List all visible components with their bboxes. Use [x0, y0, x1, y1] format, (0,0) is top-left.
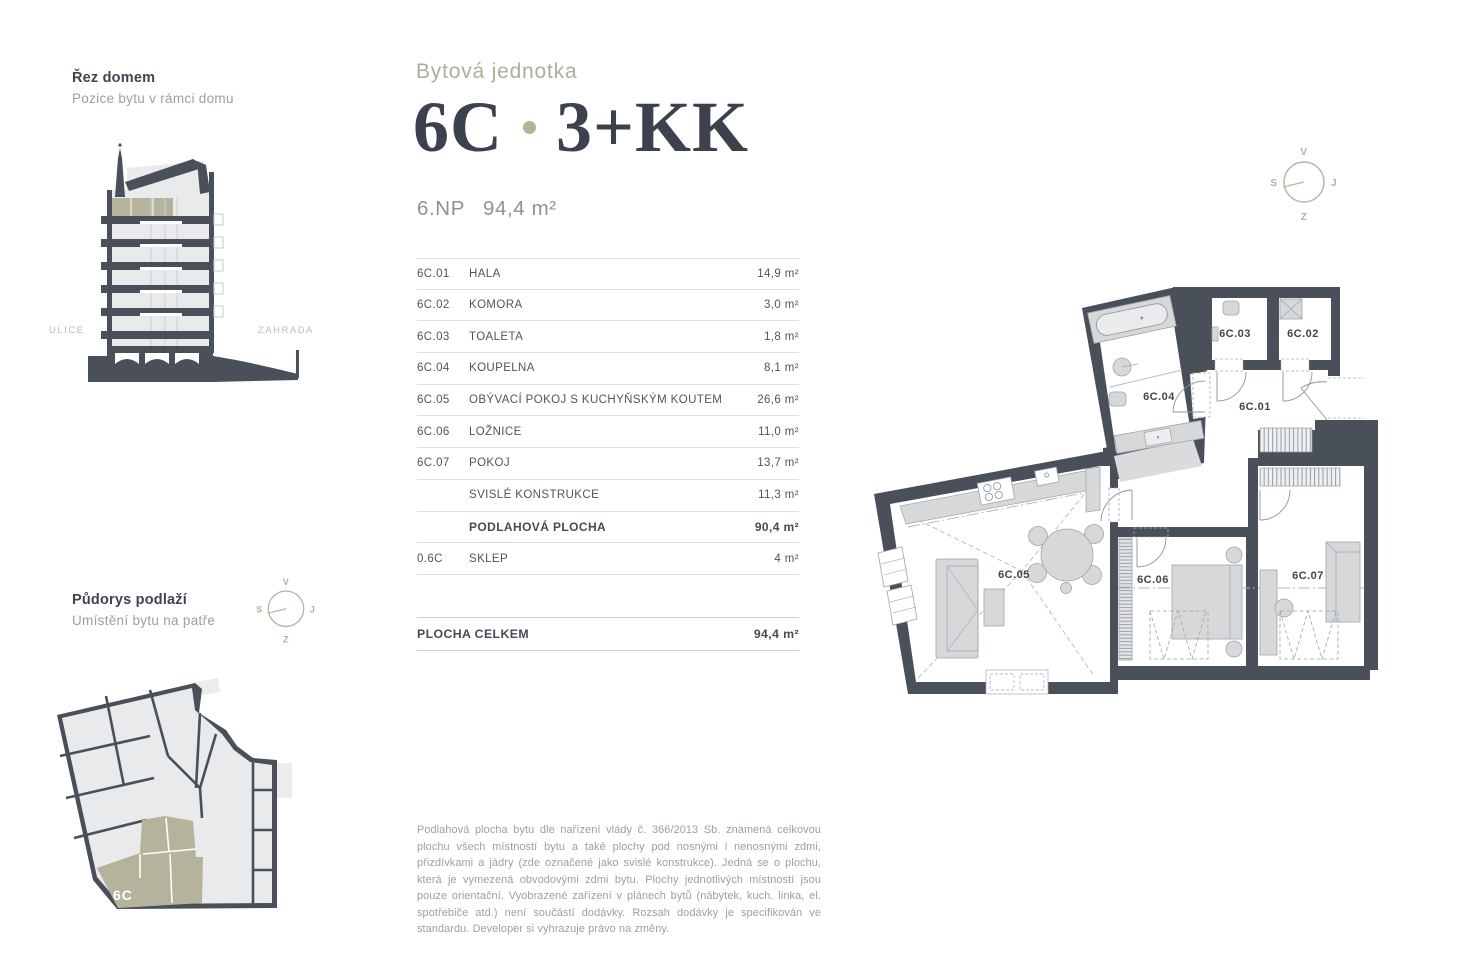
floor-view-subtitle: Umístění bytu na patře [72, 613, 215, 628]
room-code: 0.6C [417, 553, 469, 565]
room-name: KOUPELNA [469, 362, 764, 374]
room-name: SVISLÉ KONSTRUKCE [469, 489, 758, 501]
compass-icon: V J Z S [1266, 136, 1342, 224]
total-area-value: 94,4 m² [754, 627, 799, 641]
room-area: 14,9 m² [757, 268, 799, 280]
rooms-table: 6C.01 HALA 14,9 m² 6C.02 KOMORA 3,0 m² 6… [417, 258, 799, 575]
unit-floor-plan: 6C.01 6C.02 6C.03 6C.04 6C.05 6C.06 6C.0… [858, 268, 1392, 712]
table-row: 6C.05 OBÝVACÍ POKOJ S KUCHYŇSKÝM KOUTEM … [417, 385, 799, 417]
unit-code: 6C [413, 86, 503, 169]
room-area: 11,0 m² [758, 426, 799, 438]
wardrobe-hatch [1119, 538, 1132, 660]
room-name: SKLEP [469, 553, 774, 565]
small-sink [1212, 327, 1218, 341]
label-pokoj: 6C.07 [1292, 570, 1324, 582]
label-obyvaci-pokoj: 6C.05 [998, 569, 1030, 581]
room-code: 6C.06 [417, 426, 469, 438]
room-area: 90,4 m² [755, 520, 799, 534]
room-name: OBÝVACÍ POKOJ S KUCHYŇSKÝM KOUTEM [469, 394, 757, 406]
total-label: PLOCHA CELKEM [417, 627, 529, 641]
compass-west: Z [1301, 212, 1308, 223]
table-row: 6C.07 POKOJ 13,7 m² [417, 448, 799, 480]
room-code: 6C.05 [417, 394, 469, 406]
room-name: POKOJ [469, 457, 757, 469]
entry-niche [1328, 376, 1366, 420]
page-title: 6C · 3+KK [413, 86, 749, 169]
table-row: 6C.02 KOMORA 3,0 m² [417, 290, 799, 322]
table-row: 6C.06 LOŽNICE 11,0 m² [417, 416, 799, 448]
floor-overview-drawing: 6C [50, 668, 315, 938]
room-code: 6C.07 [417, 457, 469, 469]
label-komora: 6C.02 [1287, 328, 1319, 340]
label-koupelna: 6C.04 [1143, 391, 1175, 403]
table-row: SVISLÉ KONSTRUKCE 11,3 m² [417, 480, 799, 512]
room-name: HALA [469, 268, 757, 280]
french-window-bottom [986, 670, 1048, 694]
table-row: 6C.04 KOUPELNA 8,1 m² [417, 353, 799, 385]
coffee-table [984, 589, 1004, 626]
legal-disclaimer: Podlahová plocha bytu dle nařízení vlády… [417, 822, 821, 938]
compass-south: J [1331, 178, 1337, 189]
compass-needle [1283, 182, 1304, 187]
street-label: ULICE [49, 325, 84, 336]
room-area: 1,8 m² [764, 331, 799, 343]
label-toaleta: 6C.03 [1219, 328, 1251, 340]
room-code: 6C.03 [417, 331, 469, 343]
room-code: 6C.04 [417, 362, 469, 374]
washing-machine [1280, 299, 1302, 319]
room-area: 26,6 m² [757, 394, 799, 406]
room-code: 6C.01 [417, 268, 469, 280]
section-view-title: Řez domem [72, 70, 155, 86]
overview-unit-label: 6C [113, 887, 133, 903]
compass-east: V [1300, 147, 1307, 158]
building-section-drawing: ULICE ZAHRADA [45, 128, 315, 390]
label-loznice: 6C.06 [1137, 574, 1169, 586]
room-area: 4 m² [774, 553, 799, 565]
compass-north: S [1270, 178, 1277, 189]
table-row: 0.6C SKLEP 4 m² [417, 543, 799, 575]
unit-layout: 3+KK [556, 86, 749, 169]
section-view-subtitle: Pozice bytu v rámci domu [72, 91, 234, 106]
room-name: LOŽNICE [469, 426, 758, 438]
page-eyebrow: Bytová jednotka [416, 60, 577, 84]
floor-area-line: 6.NP 94,4 m² [417, 197, 557, 221]
compass-needle [267, 609, 286, 613]
compass-icon-small: V J Z S [252, 568, 320, 646]
total-row: PLOCHA CELKEM 94,4 m² [417, 617, 799, 651]
total-area: 94,4 m² [483, 197, 557, 221]
garden-label: ZAHRADA [258, 325, 314, 336]
room-name: KOMORA [469, 299, 764, 311]
compass-east: V [283, 577, 289, 587]
highlighted-floor [109, 198, 173, 219]
room-area: 8,1 m² [764, 362, 799, 374]
desk [1260, 570, 1277, 655]
floor-view-title: Půdorys podlaží [72, 592, 187, 608]
brochure-page: Řez domem Pozice bytu v rámci domu ULICE… [0, 0, 1465, 971]
room-code: 6C.02 [417, 299, 469, 311]
building-body [88, 143, 299, 382]
table-row: 6C.03 TOALETA 1,8 m² [417, 321, 799, 353]
room-name: TOALETA [469, 331, 764, 343]
compass-south: J [310, 604, 315, 614]
compass-west: Z [283, 634, 289, 644]
balconies [214, 214, 223, 317]
room-area: 11,3 m² [758, 489, 799, 501]
sofa [936, 559, 978, 658]
room-area: 13,7 m² [757, 457, 799, 469]
desk-chair [1275, 599, 1293, 617]
table-row: 6C.01 HALA 14,9 m² [417, 258, 799, 290]
floor-number: 6.NP [417, 197, 465, 221]
room-name: PODLAHOVÁ PLOCHA [469, 520, 755, 534]
room-area: 3,0 m² [764, 299, 799, 311]
dot-separator-icon: · [523, 121, 536, 134]
toilet [1109, 392, 1126, 406]
toilet-small [1223, 301, 1239, 315]
bed-kidsroom [1326, 542, 1360, 622]
label-hala: 6C.01 [1239, 401, 1271, 413]
table-row-subtotal: PODLAHOVÁ PLOCHA 90,4 m² [417, 512, 799, 544]
compass-north: S [256, 604, 262, 614]
